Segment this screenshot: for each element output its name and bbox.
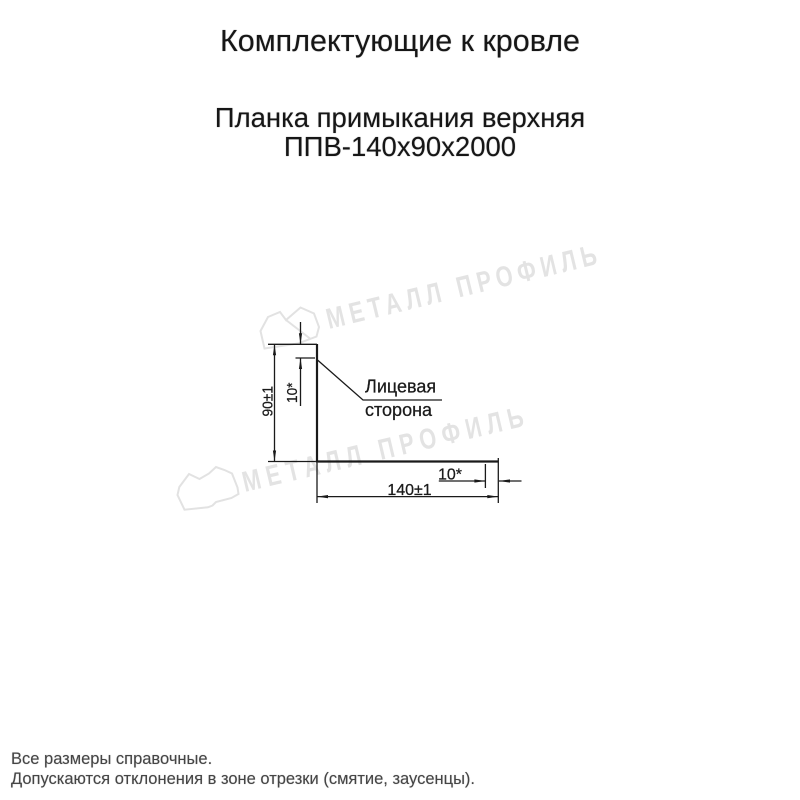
svg-text:90±1: 90±1 [260, 386, 277, 417]
svg-text:140±1: 140±1 [387, 482, 431, 499]
svg-text:Лицевая: Лицевая [365, 377, 436, 397]
svg-text:10*: 10* [438, 467, 462, 484]
svg-text:сторона: сторона [365, 400, 433, 420]
svg-text:МЕТАЛЛ ПРОФИЛЬ: МЕТАЛЛ ПРОФИЛЬ [323, 238, 605, 335]
svg-text:10*: 10* [284, 382, 301, 403]
